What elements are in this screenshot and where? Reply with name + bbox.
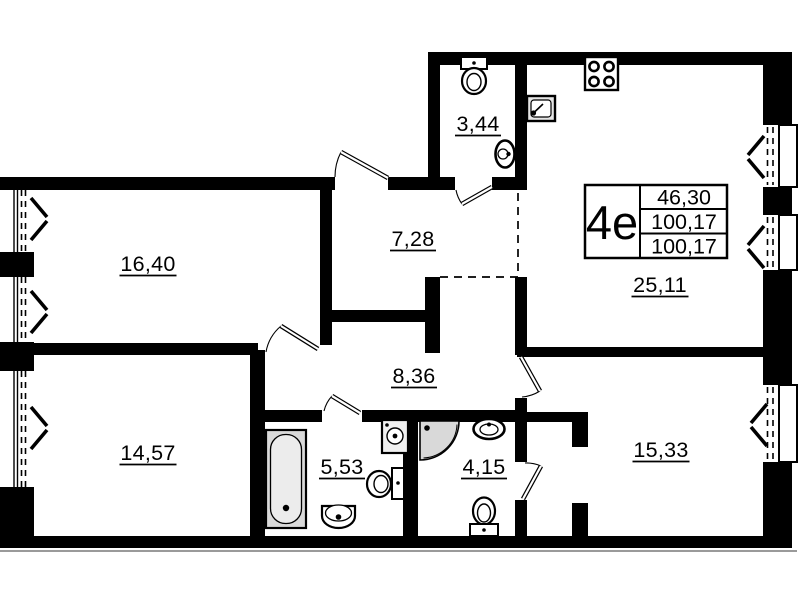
room-area-label-wc: 3,44 — [456, 112, 499, 136]
toilet-icon — [470, 498, 498, 537]
entry-door — [335, 152, 388, 178]
stamp-area-1: 46,30 — [657, 186, 711, 210]
wall-segment — [0, 536, 792, 548]
wall-segment — [515, 422, 527, 462]
room-area-label-hall: 7,28 — [391, 227, 434, 251]
wall-segment — [763, 187, 792, 215]
stamp-area-2: 100,17 — [651, 210, 717, 234]
toilet-icon — [367, 468, 404, 499]
windows-left — [14, 190, 26, 487]
bedroom-1-door — [266, 326, 318, 352]
washbasin-icon — [474, 419, 505, 439]
wall-segment — [515, 277, 527, 355]
wall-segment — [388, 177, 455, 190]
wall-segment — [515, 500, 527, 536]
window-glazing-box — [779, 125, 797, 187]
wall-segment — [428, 65, 440, 177]
room-area-label-shower-room: 4,15 — [462, 455, 505, 479]
wall-segment — [515, 398, 527, 412]
room-area-label-kitchen-living: 25,11 — [633, 273, 687, 297]
zone-boundary-dashed — [440, 193, 518, 277]
floor-plan-svg: 16,40 3,44 7,28 25,11 8,36 14,57 5,53 4,… — [0, 0, 799, 600]
room-area-label-living-room: 16,40 — [120, 252, 175, 276]
window-glazing-box — [779, 385, 797, 462]
washbasin-icon — [322, 505, 355, 528]
wc-door — [456, 187, 492, 204]
floor-plan: 16,40 3,44 7,28 25,11 8,36 14,57 5,53 4,… — [0, 0, 799, 600]
wall-segment — [763, 462, 792, 548]
shower-cabin-icon — [420, 421, 459, 460]
wall-segment — [258, 410, 322, 422]
bathroom-door — [324, 396, 360, 413]
wall-segment — [763, 52, 792, 125]
kitchen-sink-icon — [527, 96, 555, 121]
window-glazing-box — [779, 215, 797, 270]
wall-segment — [323, 310, 434, 322]
stove-icon — [585, 57, 618, 90]
bedroom-2-door — [521, 357, 540, 397]
toilet-icon — [461, 57, 487, 94]
room-area-label-bathroom: 5,53 — [320, 455, 363, 479]
apartment-stamp: 4e 46,30 100,17 100,17 — [585, 185, 727, 259]
unit-type-label: 4e — [586, 196, 638, 249]
room-area-label-corridor: 8,36 — [392, 364, 435, 388]
wall-segment — [763, 270, 792, 385]
wall-segment — [515, 65, 527, 190]
bathtub-icon — [266, 430, 306, 528]
washbasin-icon — [496, 141, 515, 168]
washing-machine-icon — [382, 420, 408, 453]
wall-segment — [425, 277, 440, 353]
room-area-label-bedroom-2: 15,33 — [633, 438, 688, 462]
stamp-area-3: 100,17 — [651, 235, 717, 259]
wall-segment — [572, 503, 588, 548]
wall-segment — [572, 412, 588, 447]
wall-segment — [0, 177, 335, 190]
wall-segment — [250, 350, 265, 536]
wall-segment — [0, 252, 34, 277]
shower-room-door — [523, 463, 541, 499]
wall-segment — [0, 343, 258, 355]
room-area-label-bedroom-1: 14,57 — [120, 441, 175, 465]
wall-segment — [517, 347, 763, 357]
